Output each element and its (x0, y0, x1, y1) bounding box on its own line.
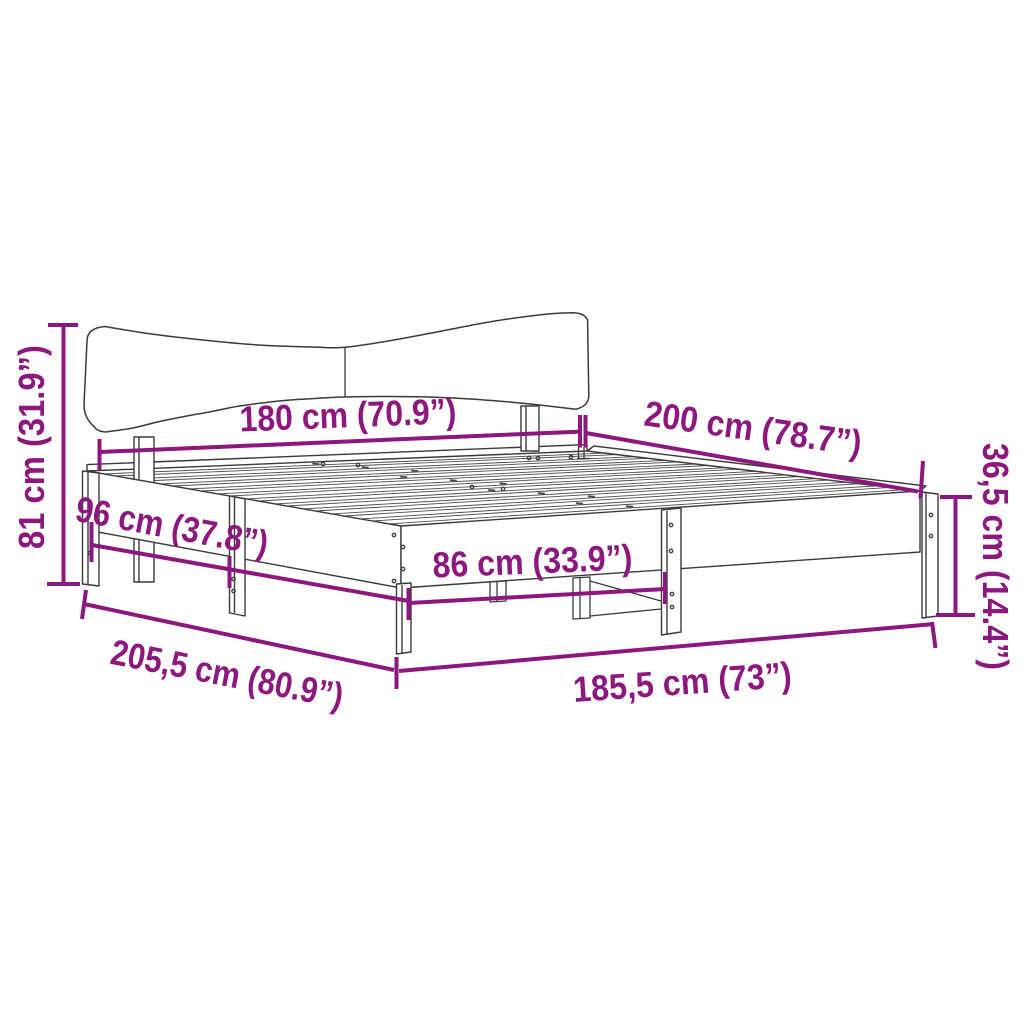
svg-text:86 cm (33.9”): 86 cm (33.9”) (432, 538, 633, 586)
svg-text:180 cm (70.9”): 180 cm (70.9”) (239, 391, 457, 439)
svg-text:81 cm (31.9”): 81 cm (31.9”) (13, 345, 53, 549)
svg-text:36,5 cm (14.4”): 36,5 cm (14.4”) (975, 443, 1015, 670)
